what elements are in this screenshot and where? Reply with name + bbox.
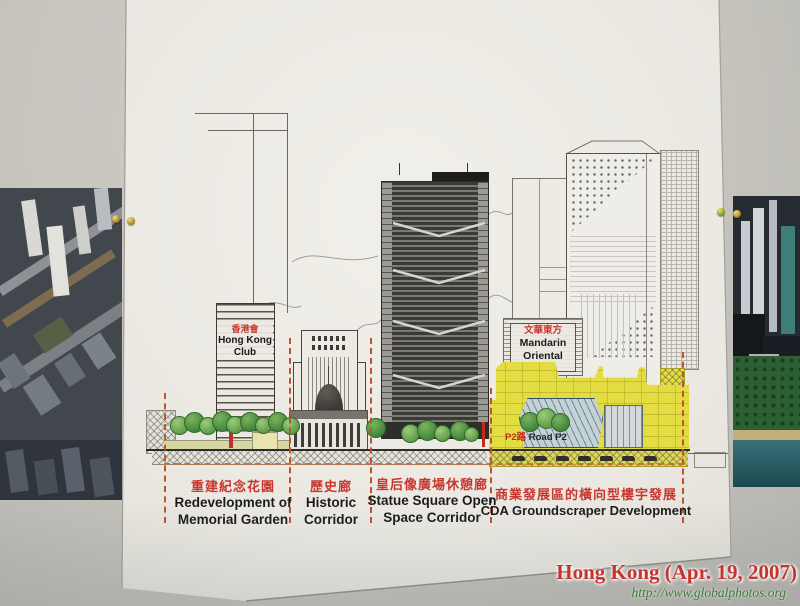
dome-finial — [328, 366, 329, 384]
car — [556, 456, 569, 461]
car — [644, 456, 657, 461]
red-boundary-marker — [482, 422, 485, 447]
cda-grey-block — [604, 405, 643, 448]
car — [622, 456, 635, 461]
outline-tower-line — [208, 130, 287, 131]
boc-windows — [312, 336, 346, 341]
hong-kong-club-label-zh: 香港會 — [217, 324, 273, 335]
building-floor-line — [540, 267, 567, 268]
tree — [366, 418, 386, 438]
old-supreme-court-building — [289, 410, 368, 452]
mandarin-label-zh: 文華東方 — [511, 324, 575, 337]
photo-of-display-board: 香港會 Hong Kong Club — [0, 0, 800, 606]
tree — [434, 425, 451, 442]
hong-kong-club-label: 香港會 Hong Kong Club — [217, 324, 273, 358]
tree — [282, 417, 300, 435]
mandarin-label-en2: Oriental — [511, 350, 575, 363]
supreme-court-cornice — [290, 411, 367, 419]
right-tower-dot-facade-upper — [570, 157, 656, 233]
building-floor-line — [540, 291, 567, 292]
brass-pin — [112, 215, 120, 223]
tree — [551, 413, 570, 432]
ground-dashed-line — [164, 463, 684, 465]
road-p2-label-en: Road P2 — [529, 432, 567, 443]
hsbc-mast — [399, 163, 400, 175]
hong-kong-club-label-en1: Hong Kong — [217, 335, 273, 347]
boc-windows — [312, 345, 346, 350]
brass-pin — [127, 217, 135, 225]
car — [600, 456, 613, 461]
car — [512, 456, 525, 461]
tree — [464, 427, 479, 442]
hsbc-suspension-trusses — [391, 181, 487, 437]
mandarin-label-en1: Mandarin — [511, 337, 575, 350]
outline-tower-top-line — [195, 113, 287, 114]
outline-tower-edge — [287, 113, 288, 313]
brass-pin — [717, 208, 725, 216]
watermark-title: Hong Kong (Apr. 19, 2007) — [556, 560, 797, 585]
far-right-tower — [660, 150, 699, 370]
right-tower-floor-lines — [570, 236, 656, 302]
brass-pin — [733, 210, 741, 218]
outline-tower-edge — [253, 113, 254, 303]
right-podium-outline — [694, 452, 726, 468]
hong-kong-club-label-en2: Club — [217, 347, 273, 359]
right-tower-grid-lines — [581, 294, 637, 358]
road-p2-label-zh: P2路 — [505, 432, 529, 443]
supreme-court-colonnade — [294, 423, 363, 447]
building-floor-line — [540, 279, 567, 280]
car — [534, 456, 547, 461]
watermark-url: http://www.globalphotos.org — [631, 585, 786, 601]
car — [578, 456, 591, 461]
